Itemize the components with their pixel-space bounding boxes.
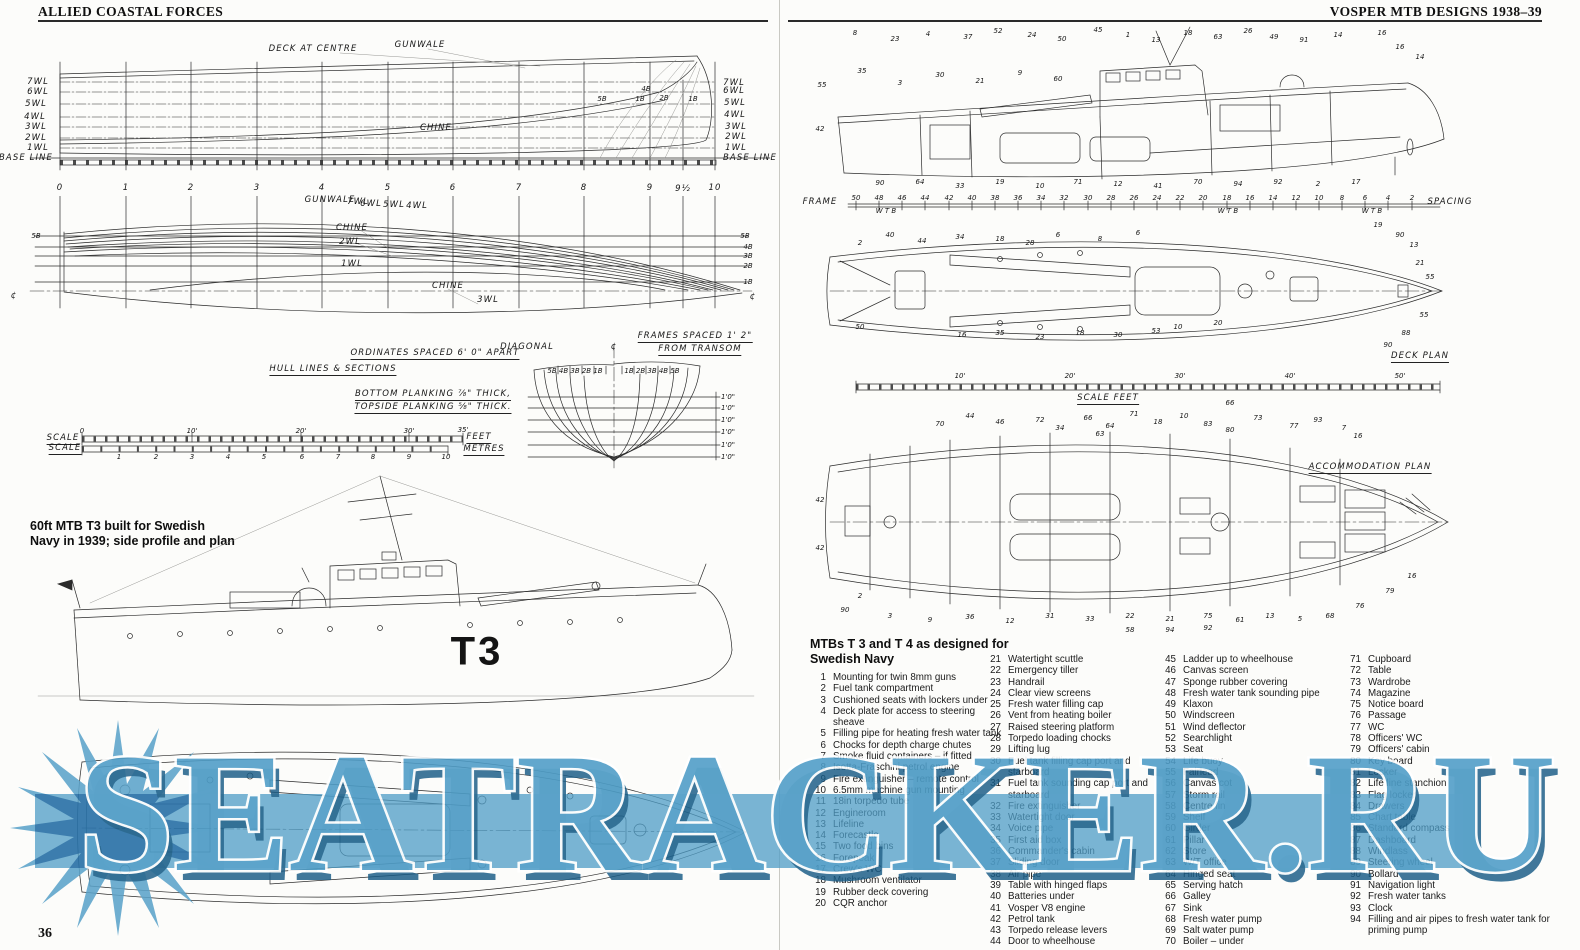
drawing-label: 20' xyxy=(1065,372,1076,380)
drawing-label: 1B xyxy=(635,95,644,103)
drawing-label: 6 xyxy=(1056,231,1060,239)
parts-list-column-1: 1Mounting for twin 8mm guns2Fuel tank co… xyxy=(810,672,1002,909)
drawing-label: 5B xyxy=(597,95,606,103)
left-header-rule xyxy=(38,20,768,22)
drawing-label: W T B xyxy=(1218,207,1238,215)
drawing-label: TOPSIDE PLANKING ⅝" THICK. xyxy=(354,402,511,414)
drawing-label: 20 xyxy=(1214,319,1223,327)
drawing-label: 14 xyxy=(1416,53,1425,61)
drawing-label: GUNWALE xyxy=(395,40,446,50)
parts-list-item: 66Galley xyxy=(1160,891,1345,902)
drawing-label: CHINE xyxy=(432,281,464,291)
right-page-header: VOSPER MTB DESIGNS 1938–39 xyxy=(1330,4,1542,20)
parts-list-item: 62Store xyxy=(1160,846,1345,857)
drawing-label: 10 xyxy=(1036,182,1045,190)
right-header-rule xyxy=(788,20,1542,22)
parts-list-item: 30Fuel tank filling cap port and starboa… xyxy=(985,756,1165,779)
parts-list-item: 52Searchlight xyxy=(1160,733,1345,744)
drawing-label: 40' xyxy=(1285,372,1296,380)
drawing-label: 8 xyxy=(1098,235,1102,243)
parts-list-item: 31Fuel tank sounding cap port and starbo… xyxy=(985,778,1165,801)
drawing-label: 55 xyxy=(1426,273,1435,281)
drawing-label: SCALE FEET xyxy=(1077,393,1139,405)
drawing-label: 61 xyxy=(1236,616,1245,624)
parts-list-item: 35First aid box xyxy=(985,835,1165,846)
drawing-label: 1'0" xyxy=(721,428,735,436)
drawing-label: 9½ xyxy=(675,184,691,194)
drawing-label: 1 xyxy=(123,183,130,193)
drawing-label: 1'0" xyxy=(721,404,735,412)
body-plan-and-notes: HULL LINES & SECTIONSORDINATES SPACED 6'… xyxy=(0,330,775,470)
parts-list-item: 47Sponge rubber covering xyxy=(1160,677,1345,688)
drawing-label: 77 xyxy=(1290,422,1299,430)
parts-list-item: 37Sliding door xyxy=(985,857,1165,868)
parts-list-item: 3Cushioned seats with lockers under xyxy=(810,695,1002,706)
drawing-label: 7 xyxy=(1342,424,1346,432)
drawing-label: 34 xyxy=(1056,424,1065,432)
drawing-label: HULL LINES & SECTIONS xyxy=(269,364,396,376)
parts-list-item: 26Vent from heating boiler xyxy=(985,710,1165,721)
drawing-label: SPACING xyxy=(1428,197,1473,207)
drawing-label: 4WL xyxy=(724,110,746,120)
parts-list-item: 72Table xyxy=(1345,665,1570,676)
drawing-label: 9 xyxy=(1018,69,1022,77)
drawing-label: 52 xyxy=(994,27,1003,35)
parts-list-item: 2Fuel tank compartment xyxy=(810,683,1002,694)
drawing-label: CHINE xyxy=(336,223,368,233)
parts-list-item: 1Mounting for twin 8mm guns xyxy=(810,672,1002,683)
drawing-label: 3WL xyxy=(477,295,499,305)
book-spread: ALLIED COASTAL FORCES VOSPER MTB DESIGNS… xyxy=(0,0,1580,950)
drawing-label: 1WL xyxy=(27,143,49,153)
drawing-label: 92 xyxy=(1274,178,1283,186)
drawing-label: 10' xyxy=(187,427,198,435)
drawing-label: 16 xyxy=(1408,572,1417,580)
parts-list-item: 12Engineroom xyxy=(810,808,1002,819)
parts-list-item: 94Filling and air pipes to fresh water t… xyxy=(1345,914,1570,937)
drawing-label: 70 xyxy=(1194,178,1203,186)
drawing-label: 34 xyxy=(1037,194,1046,202)
drawing-label: 3 xyxy=(898,79,902,87)
parts-list-item: 77WC xyxy=(1345,722,1570,733)
drawing-label: 16 xyxy=(958,331,967,339)
left-page-header: ALLIED COASTAL FORCES xyxy=(38,4,223,20)
drawing-label: 21 xyxy=(1166,615,1175,623)
parts-list-column-3: 45Ladder up to wheelhouse46Canvas screen… xyxy=(1160,654,1345,948)
drawing-label: 40 xyxy=(968,194,977,202)
drawing-label: 1WL xyxy=(341,259,363,269)
drawing-label: 23 xyxy=(891,35,900,43)
parts-list-item: 4Deck plate for access to steering sheav… xyxy=(810,706,1002,729)
drawing-label: 90 xyxy=(841,606,850,614)
parts-list-item: 14Forecastle xyxy=(810,830,1002,841)
drawing-label: 13 xyxy=(1152,36,1161,44)
parts-list-item: 33Watertight door xyxy=(985,812,1165,823)
drawing-label: 3B xyxy=(743,252,752,260)
parts-list-item: 59Shelf xyxy=(1160,812,1345,823)
accommodation-plan-drawing: ACCOMMODATION PLAN6664711810836334721673… xyxy=(800,406,1480,638)
drawing-label: 35 xyxy=(858,67,867,75)
drawing-label: 30 xyxy=(1114,331,1123,339)
drawing-label: 1B xyxy=(688,95,697,103)
drawing-label: 90 xyxy=(1384,341,1393,349)
parts-list-item: 88Windlass xyxy=(1345,846,1570,857)
parts-list-item: 64Hinged seat xyxy=(1160,869,1345,880)
drawing-label: 2 xyxy=(154,453,158,461)
drawing-label: 6 xyxy=(1136,229,1140,237)
parts-list-item: 17Crew's WC xyxy=(810,864,1002,875)
drawing-label: 7 xyxy=(336,453,340,461)
drawing-label: 4B xyxy=(641,85,650,93)
drawing-label: 42 xyxy=(816,496,825,504)
drawing-label: 2 xyxy=(188,183,195,193)
drawing-label: 2WL xyxy=(339,237,361,247)
deck-plan-lines xyxy=(800,215,1480,365)
page-number: 36 xyxy=(38,926,52,942)
deck-plan-drawing: DECK PLAN1990132155558890186862824044345… xyxy=(800,215,1480,365)
drawing-label: 10 xyxy=(442,453,451,461)
drawing-label: 9 xyxy=(407,453,411,461)
drawing-label: 8 xyxy=(853,29,857,37)
drawing-label: 1B xyxy=(743,278,752,286)
drawing-label: 44 xyxy=(966,412,975,420)
drawing-label: 79 xyxy=(1386,587,1395,595)
parts-list-item: 36Commander's cabin xyxy=(985,846,1165,857)
drawing-label: 3 xyxy=(254,183,261,193)
drawing-label: 5B 4B 3B 2B 1B xyxy=(547,367,602,375)
parts-list-item: 61Pillar xyxy=(1160,835,1345,846)
drawing-label: 1 xyxy=(1126,31,1130,39)
drawing-label: SCALE xyxy=(49,443,82,455)
parts-list-item: 80Key board xyxy=(1345,756,1570,767)
drawing-label: 46 xyxy=(996,418,1005,426)
drawing-label: 90 xyxy=(876,179,885,187)
drawing-label: FRAMES SPACED 1' 2" xyxy=(638,331,753,343)
drawing-label: 30' xyxy=(404,427,415,435)
drawing-label: 8 xyxy=(581,183,588,193)
drawing-label: 9 xyxy=(647,183,654,193)
drawing-label: ¢ xyxy=(750,292,757,302)
parts-list-item: 22Emergency tiller xyxy=(985,665,1165,676)
parts-list-item: 68Fresh water pump xyxy=(1160,914,1345,925)
drawing-label: 90 xyxy=(1396,231,1405,239)
drawing-label: CHINE xyxy=(420,123,452,133)
drawing-label: 24 xyxy=(1028,31,1037,39)
drawing-label: 91 xyxy=(1300,36,1309,44)
parts-list-item: 48Fresh water tank sounding pipe xyxy=(1160,688,1345,699)
parts-list-item: 45Ladder up to wheelhouse xyxy=(1160,654,1345,665)
parts-list-item: 70Boiler – under xyxy=(1160,936,1345,947)
drawing-label: 19 xyxy=(1374,221,1383,229)
caption-line-1: MTBs T 3 and T 4 as designed for xyxy=(810,637,1009,652)
drawing-label: 16 xyxy=(1378,29,1387,37)
drawing-label: 21 xyxy=(976,77,985,85)
drawing-label: 20' xyxy=(296,427,307,435)
drawing-label: ¢ xyxy=(11,291,18,301)
drawing-label: 1B 2B 3B 4B 5B xyxy=(624,367,679,375)
drawing-label: 71 xyxy=(1074,178,1083,186)
parts-list-item: 75Notice board xyxy=(1345,699,1570,710)
parts-list-item: 50Windscreen xyxy=(1160,710,1345,721)
drawing-label: 12 xyxy=(1292,194,1301,202)
parts-list-item: 93Clock xyxy=(1345,903,1570,914)
drawing-label: 63 xyxy=(1214,33,1223,41)
drawing-label: 2 xyxy=(1410,194,1414,202)
drawing-label: 50 xyxy=(1058,35,1067,43)
drawing-label: 26 xyxy=(1244,27,1253,35)
parts-list-item: 106.5mm machine gun mounting xyxy=(810,785,1002,796)
parts-list-item: 7Smoke fluid containers – if fitted xyxy=(810,751,1002,762)
drawing-label: W T B xyxy=(876,207,896,215)
parts-list-item: 71Cupboard xyxy=(1345,654,1570,665)
drawing-label: 5 xyxy=(1298,615,1302,623)
drawing-label: 3 xyxy=(190,453,194,461)
drawing-label: T3 xyxy=(451,630,504,675)
drawing-label: 10 xyxy=(1174,323,1183,331)
parts-list-item: 25Fresh water filling cap xyxy=(985,699,1165,710)
t3-plan-lines xyxy=(30,720,760,948)
parts-list-item: 58Centre fin xyxy=(1160,801,1345,812)
drawing-label: 28 xyxy=(1026,239,1035,247)
drawing-label: 17 xyxy=(1352,178,1361,186)
drawing-label: 80 xyxy=(1226,426,1235,434)
parts-list-item: 92Fresh water tanks xyxy=(1345,891,1570,902)
drawing-label: 4 xyxy=(226,453,230,461)
parts-list-item: 34Voice pipe xyxy=(985,823,1165,834)
t3-deck-plan-drawing xyxy=(30,720,760,948)
drawing-label: METRES xyxy=(463,444,504,456)
drawing-label: 22 xyxy=(1176,194,1185,202)
drawing-label: DECK PLAN xyxy=(1391,351,1449,363)
drawing-label: ORDINATES SPACED 6' 0" APART xyxy=(350,348,519,360)
drawing-label: 4 xyxy=(926,30,930,38)
drawing-label: 1'0" xyxy=(721,393,735,401)
drawing-label: 64 xyxy=(916,178,925,186)
parts-list-item: 42Petrol tank xyxy=(985,914,1165,925)
drawing-label: 6WL xyxy=(27,87,49,97)
parts-list-item: 83Flag locker xyxy=(1345,790,1570,801)
drawing-label: 12 xyxy=(1006,617,1015,625)
drawing-label: 40 xyxy=(886,231,895,239)
parts-list-item: 56Canvas cot xyxy=(1160,778,1345,789)
parts-list-item: 91Navigation light xyxy=(1345,880,1570,891)
drawing-label: 2B xyxy=(743,262,752,270)
drawing-label: 8 xyxy=(371,453,375,461)
drawing-label: 68 xyxy=(1326,612,1335,620)
drawing-label: DECK AT CENTRE xyxy=(269,44,358,54)
drawing-label: 94 xyxy=(1234,180,1243,188)
drawing-label: 30 xyxy=(1084,194,1093,202)
drawing-label: 66 xyxy=(1084,414,1093,422)
parts-list-item: 8Isotta-Fraschini petrol engine xyxy=(810,762,1002,773)
drawing-label: 30 xyxy=(936,71,945,79)
drawing-label: 94 xyxy=(1166,626,1175,634)
hull-lines-sheer-plan: DECK AT CENTREGUNWALE7WL6WL5WL4WL3WL2WL1… xyxy=(0,40,775,198)
drawing-label: 6 xyxy=(300,453,304,461)
drawing-label: 10 xyxy=(1315,194,1324,202)
drawing-label: 2WL xyxy=(25,133,47,143)
drawing-label: 23 xyxy=(1036,333,1045,341)
drawing-label: 44 xyxy=(921,194,930,202)
drawing-label: 64 xyxy=(1106,422,1115,430)
drawing-label: 1'0" xyxy=(721,453,735,461)
drawing-label: 6WL xyxy=(360,199,382,209)
drawing-label: 4 xyxy=(319,183,326,193)
drawing-label: 7WL xyxy=(27,77,49,87)
parts-list-item: 49Klaxon xyxy=(1160,699,1345,710)
parts-list-item: 84Drawers xyxy=(1345,801,1570,812)
drawing-label: 45 xyxy=(1094,26,1103,34)
drawing-label: 0 xyxy=(80,427,84,435)
parts-list-item: 18Mushroom ventilator xyxy=(810,875,1002,886)
parts-list-item: 54Life buoy xyxy=(1160,756,1345,767)
drawing-label: 1'0" xyxy=(721,416,735,424)
drawing-label: 28 xyxy=(1107,194,1116,202)
drawing-label: 19 xyxy=(996,178,1005,186)
caption-line-2: Swedish Navy xyxy=(810,652,1009,667)
drawing-label: 3 xyxy=(888,612,892,620)
drawing-label: 5WL xyxy=(724,98,746,108)
parts-list-item: 51Wind deflector xyxy=(1160,722,1345,733)
parts-list-item: 55Fairlead xyxy=(1160,767,1345,778)
parts-list-item: 41Vosper V8 engine xyxy=(985,903,1165,914)
accommodation-plan-lines xyxy=(800,406,1480,638)
parts-list-item: 82Life line stanchion xyxy=(1345,778,1570,789)
drawing-label: 6WL xyxy=(723,86,745,96)
drawing-label: 14 xyxy=(1334,31,1343,39)
drawing-label: 1'0" xyxy=(721,441,735,449)
parts-list-item: 60Girder xyxy=(1160,823,1345,834)
drawing-label: 55 xyxy=(818,81,827,89)
half-breadth-lines xyxy=(0,196,775,330)
parts-list-item: 69Salt water pump xyxy=(1160,925,1345,936)
inboard-profile-lines xyxy=(800,25,1465,197)
drawing-label: 92 xyxy=(1204,624,1213,632)
drawing-label: 42 xyxy=(816,544,825,552)
drawing-label: 26 xyxy=(1130,194,1139,202)
drawing-label: 18 xyxy=(1184,29,1193,37)
drawing-label: 49 xyxy=(1270,33,1279,41)
parts-list-item: 86Standard compass xyxy=(1345,823,1570,834)
parts-list-item: 27Raised steering platform xyxy=(985,722,1165,733)
parts-list-item: 89Steering wheel xyxy=(1345,857,1570,868)
drawing-label: 4 xyxy=(1386,194,1390,202)
parts-list-item: 39Table with hinged flaps xyxy=(985,880,1165,891)
drawing-label: 93 xyxy=(1314,416,1323,424)
drawing-label: 5 xyxy=(385,183,392,193)
drawing-label: 10' xyxy=(955,372,966,380)
drawing-label: FRAME xyxy=(803,197,838,207)
drawing-label: 33 xyxy=(1086,615,1095,623)
drawing-label: 2B xyxy=(659,94,668,102)
drawing-label: 35 xyxy=(996,329,1005,337)
parts-list-item: 76Passage xyxy=(1345,710,1570,721)
drawing-label: 14 xyxy=(1269,194,1278,202)
drawing-label: 36 xyxy=(966,613,975,621)
page-gutter xyxy=(779,0,780,950)
drawing-label: 8 xyxy=(1340,194,1344,202)
drawing-label: 38 xyxy=(991,194,1000,202)
parts-list-item: 13Lifeline xyxy=(810,819,1002,830)
right-figure-caption: MTBs T 3 and T 4 as designed for Swedish… xyxy=(810,637,1009,667)
drawing-label: DIAGONAL xyxy=(500,342,554,352)
drawing-label: 37 xyxy=(964,33,973,41)
parts-list-item: 32Fire extinguisher xyxy=(985,801,1165,812)
drawing-label: 6 xyxy=(450,183,457,193)
drawing-label: BASE LINE xyxy=(723,153,777,163)
drawing-label: 3WL xyxy=(25,122,47,132)
parts-list-item: 20CQR anchor xyxy=(810,898,1002,909)
drawing-label: 18 xyxy=(1223,194,1232,202)
parts-list-item: 21Watertight scuttle xyxy=(985,654,1165,665)
drawing-label: 48 xyxy=(875,194,884,202)
drawing-label: 4WL xyxy=(24,112,46,122)
parts-list-item: 90Bollard xyxy=(1345,869,1570,880)
drawing-label: 3WL xyxy=(725,122,747,132)
drawing-label: 18 xyxy=(1076,329,1085,337)
parts-list-item: 19Rubber deck covering xyxy=(810,887,1002,898)
parts-list-item: 67Sink xyxy=(1160,903,1345,914)
hull-lines-half-breadth-plan: GUNWALE7WL6WL5WL4WLCHINE2WL1WLCHINE3WL5B… xyxy=(0,196,775,330)
parts-list-item: 53Seat xyxy=(1160,744,1345,755)
drawing-label: 50 xyxy=(852,194,861,202)
parts-list-item: 9Fire extinguisher – remote control xyxy=(810,774,1002,785)
drawing-label: 5B xyxy=(31,232,40,240)
drawing-label: FROM TRANSOM xyxy=(658,344,741,356)
drawing-label: 13 xyxy=(1266,612,1275,620)
drawing-label: 34 xyxy=(956,233,965,241)
drawing-label: 41 xyxy=(1154,182,1163,190)
drawing-label: 71 xyxy=(1130,410,1139,418)
drawing-label: 16 xyxy=(1354,432,1363,440)
parts-list-item: 5Filling pipe for heating fresh water ta… xyxy=(810,728,1002,739)
drawing-label: 21 xyxy=(1416,259,1425,267)
drawing-label: FEET xyxy=(466,432,491,444)
drawing-label: 2WL xyxy=(725,132,747,142)
t3-side-profile-drawing: T3 xyxy=(30,468,760,733)
t3-profile-lines xyxy=(30,468,760,733)
parts-list-item: 87Dashboard xyxy=(1345,835,1570,846)
drawing-label: 1 xyxy=(117,453,121,461)
drawing-label: 76 xyxy=(1356,602,1365,610)
drawing-label: 5 xyxy=(262,453,266,461)
drawing-label: 7 xyxy=(516,183,523,193)
drawing-label: 50 xyxy=(856,323,865,331)
drawing-label: 36 xyxy=(1014,194,1023,202)
drawing-label: 58 xyxy=(1126,626,1135,634)
parts-list-item: 79Officers' cabin xyxy=(1345,744,1570,755)
drawing-label: 44 xyxy=(918,237,927,245)
drawing-label: 16 xyxy=(1246,194,1255,202)
drawing-label: 33 xyxy=(956,182,965,190)
parts-list-item: 24Clear view screens xyxy=(985,688,1165,699)
parts-list-item: 78Officers' WC xyxy=(1345,733,1570,744)
drawing-label: 5WL xyxy=(25,99,47,109)
drawing-label: BASE LINE xyxy=(0,153,53,163)
parts-list-item: 85Chart table xyxy=(1345,812,1570,823)
drawing-label: BOTTOM PLANKING ⅞" THICK, xyxy=(355,389,511,401)
drawing-label: 32 xyxy=(1060,194,1069,202)
drawing-label: 2 xyxy=(858,239,862,247)
parts-list-item: 65Serving hatch xyxy=(1160,880,1345,891)
parts-list-item: 28Torpedo loading chocks xyxy=(985,733,1165,744)
drawing-label: 20 xyxy=(1199,194,1208,202)
inboard-profile-drawing: 8234375224504511318632649911416161455423… xyxy=(800,25,1465,197)
parts-list-item: 73Wardrobe xyxy=(1345,677,1570,688)
parts-list-column-4: 71Cupboard72Table73Wardrobe74Magazine75N… xyxy=(1345,654,1570,936)
frame-spacing-scale: FRAME50484644424038363432302826242220181… xyxy=(800,192,1480,216)
drawing-label: 12 xyxy=(1114,180,1123,188)
